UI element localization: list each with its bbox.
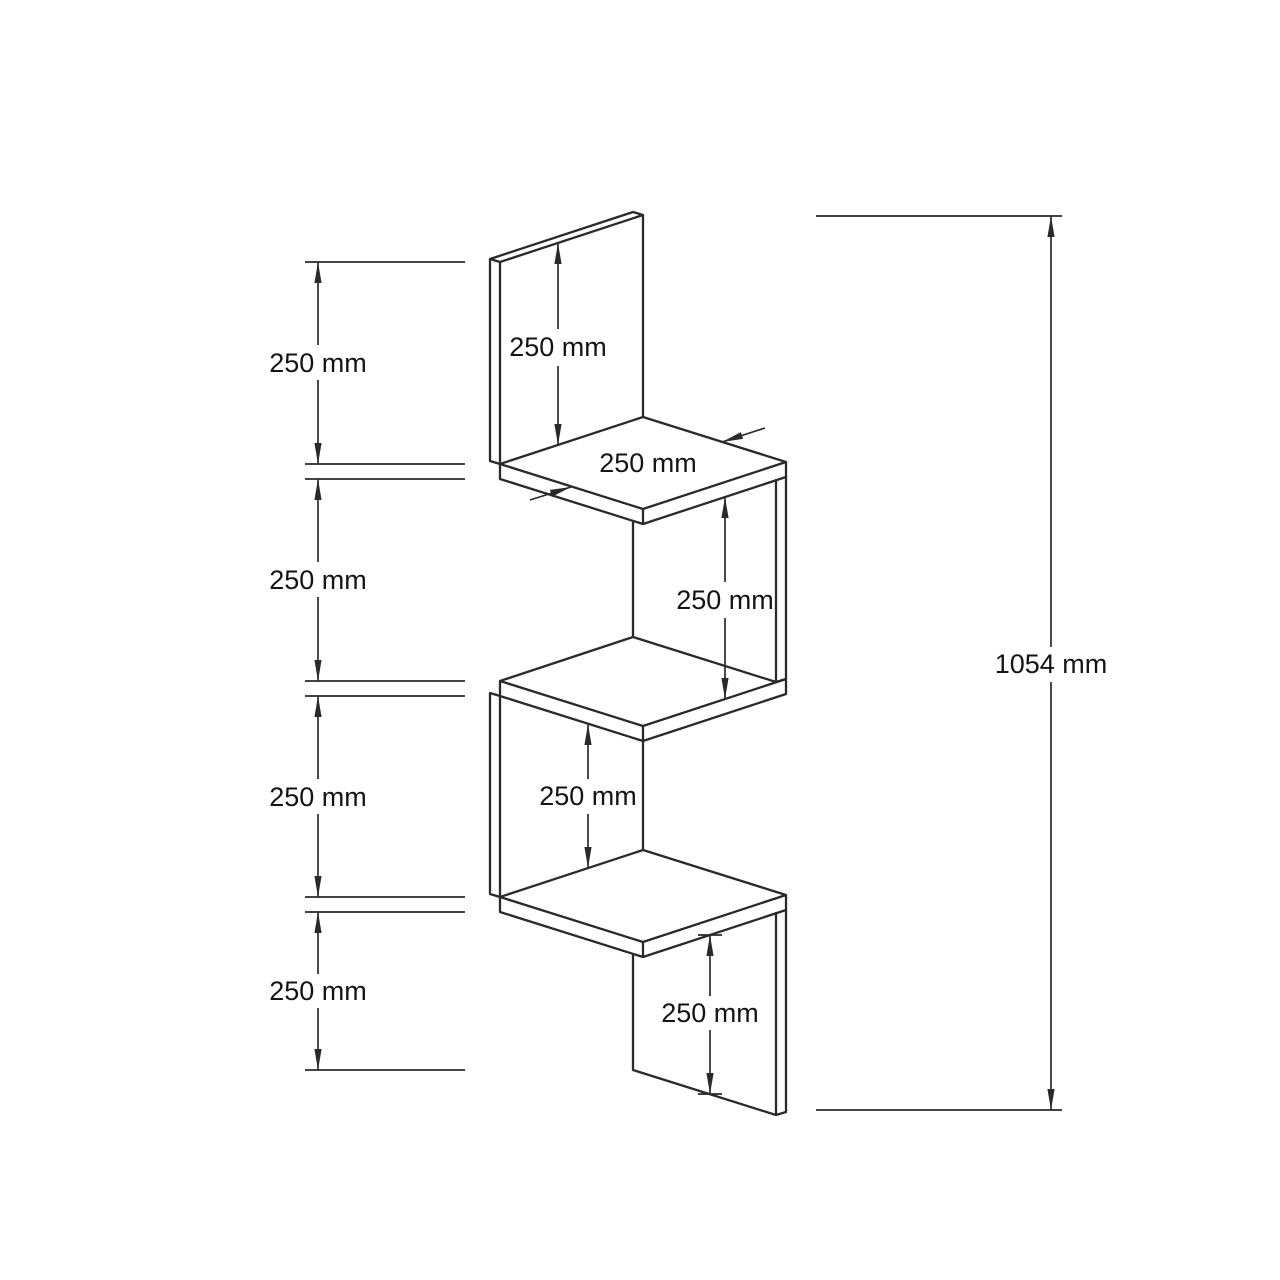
dimension-leader-arrow xyxy=(530,487,571,500)
dimension-label: 250 mm xyxy=(509,332,607,362)
dimension-label: 250 mm xyxy=(599,448,697,478)
dimension-leader-arrow xyxy=(722,428,765,442)
shelf-3 xyxy=(500,850,786,957)
right-panel-upper xyxy=(633,477,786,682)
overall-height-dimension: 1054 mm xyxy=(816,216,1107,1110)
dimension-label: 250 mm xyxy=(269,976,367,1006)
dimension-label: 250 mm xyxy=(676,585,774,615)
shelf-2 xyxy=(500,637,786,741)
technical-drawing-canvas: 250 mm 250 mm 250 mm 250 mm 1054 mm 250 … xyxy=(0,0,1280,1280)
overall-height-label: 1054 mm xyxy=(995,649,1108,679)
drawing-page: 250 mm 250 mm 250 mm 250 mm 1054 mm 250 … xyxy=(0,0,1280,1280)
dimension-label: 250 mm xyxy=(269,782,367,812)
left-extension-lines xyxy=(305,262,465,1070)
dimension-label: 250 mm xyxy=(661,998,759,1028)
dimension-label: 250 mm xyxy=(269,348,367,378)
dimension-label: 250 mm xyxy=(539,781,637,811)
left-dimension-chain: 250 mm 250 mm 250 mm 250 mm xyxy=(269,262,465,1070)
dimension-label: 250 mm xyxy=(269,565,367,595)
